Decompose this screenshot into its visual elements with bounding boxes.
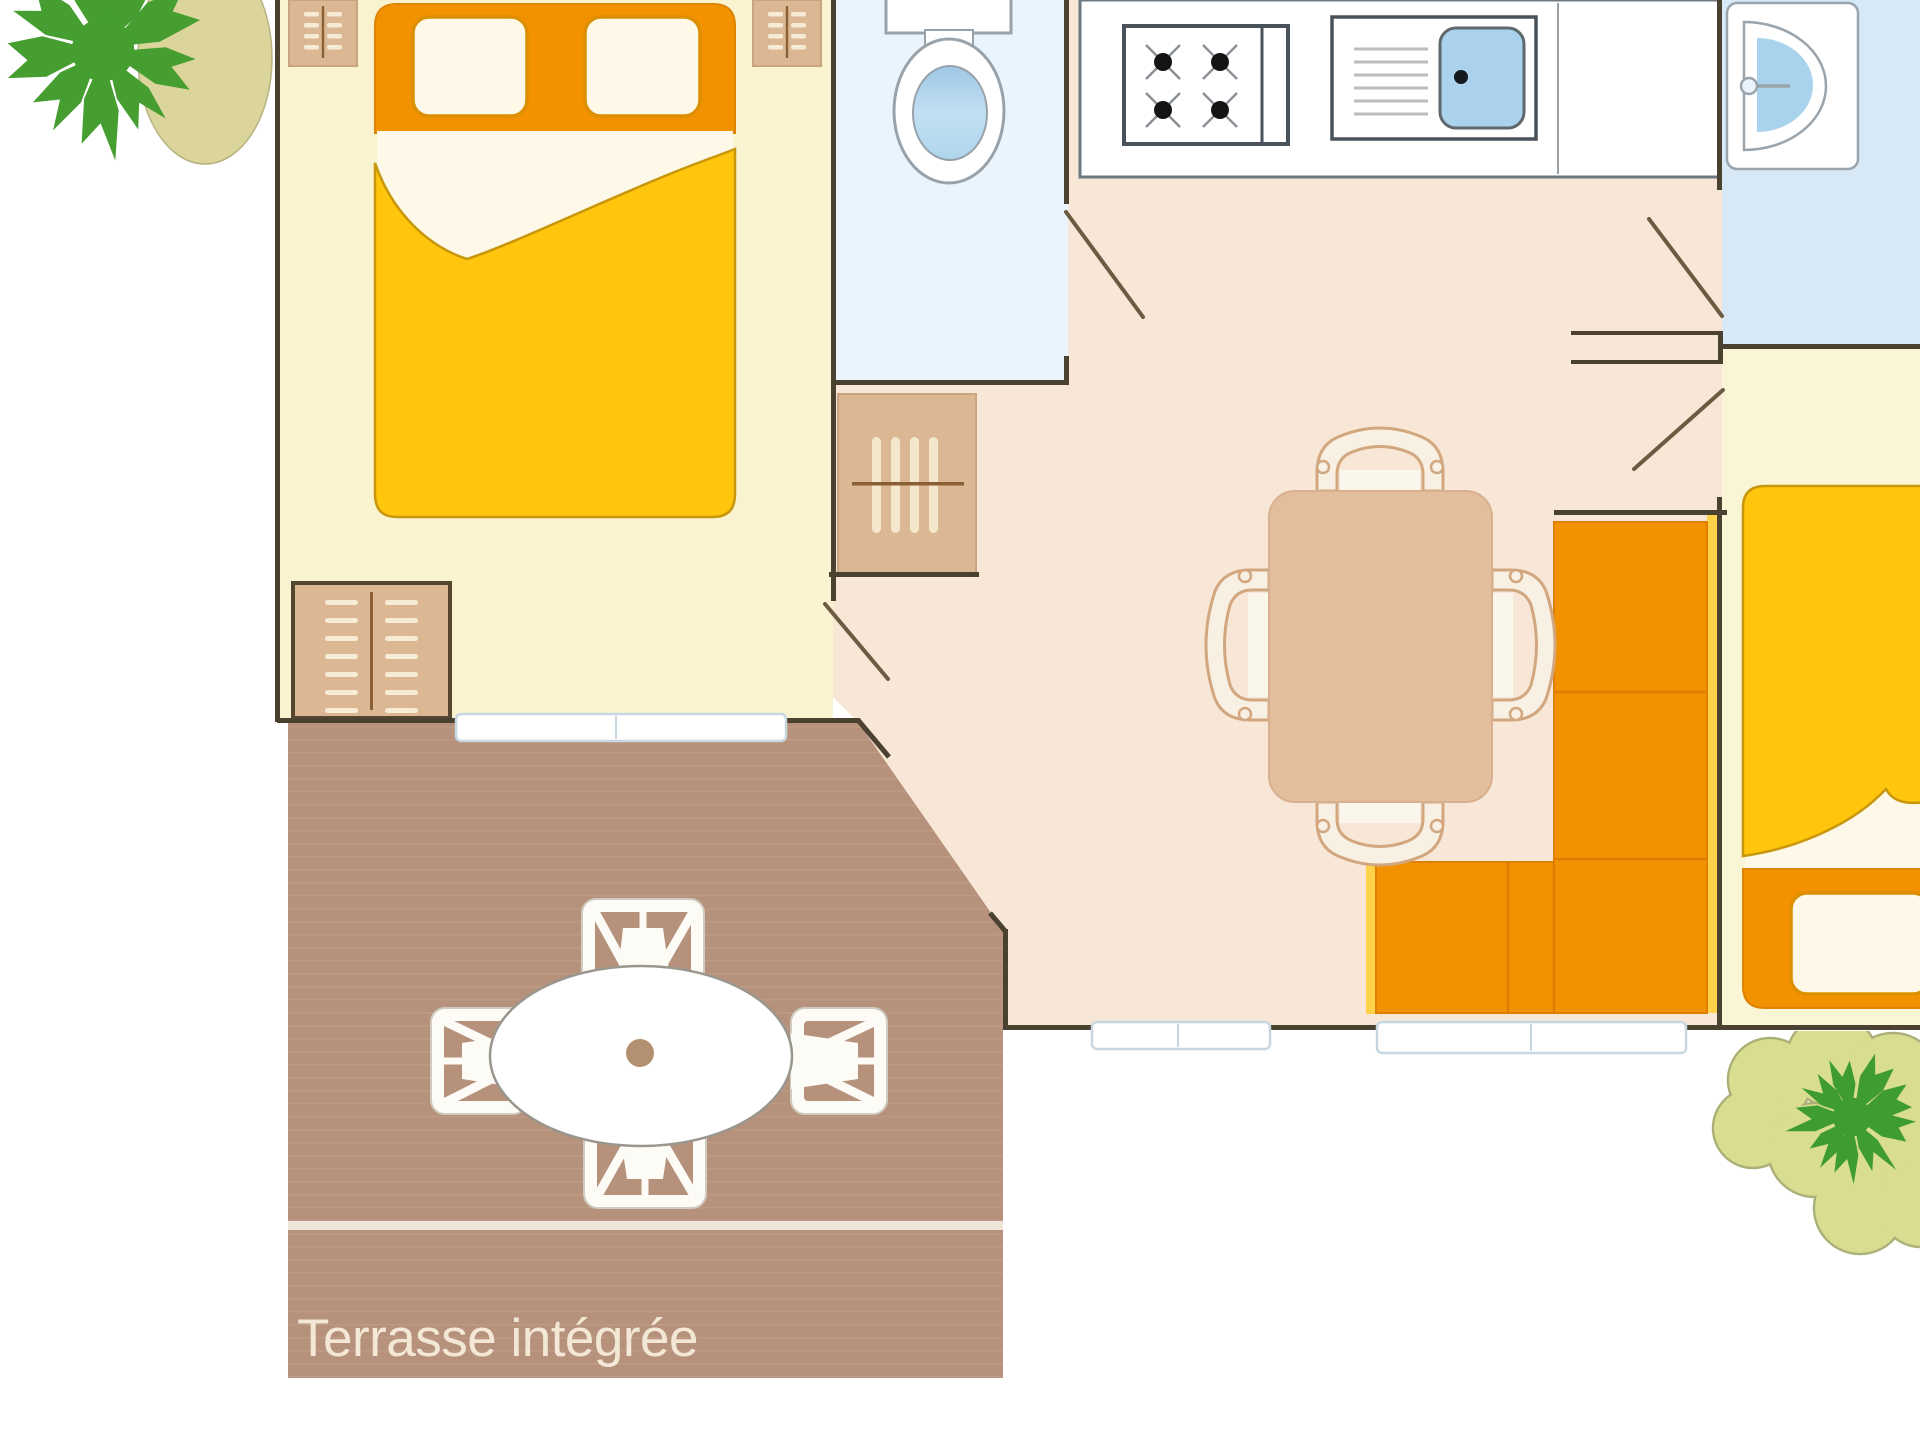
svg-text:Terrasse intégrée: Terrasse intégrée (297, 1309, 698, 1368)
